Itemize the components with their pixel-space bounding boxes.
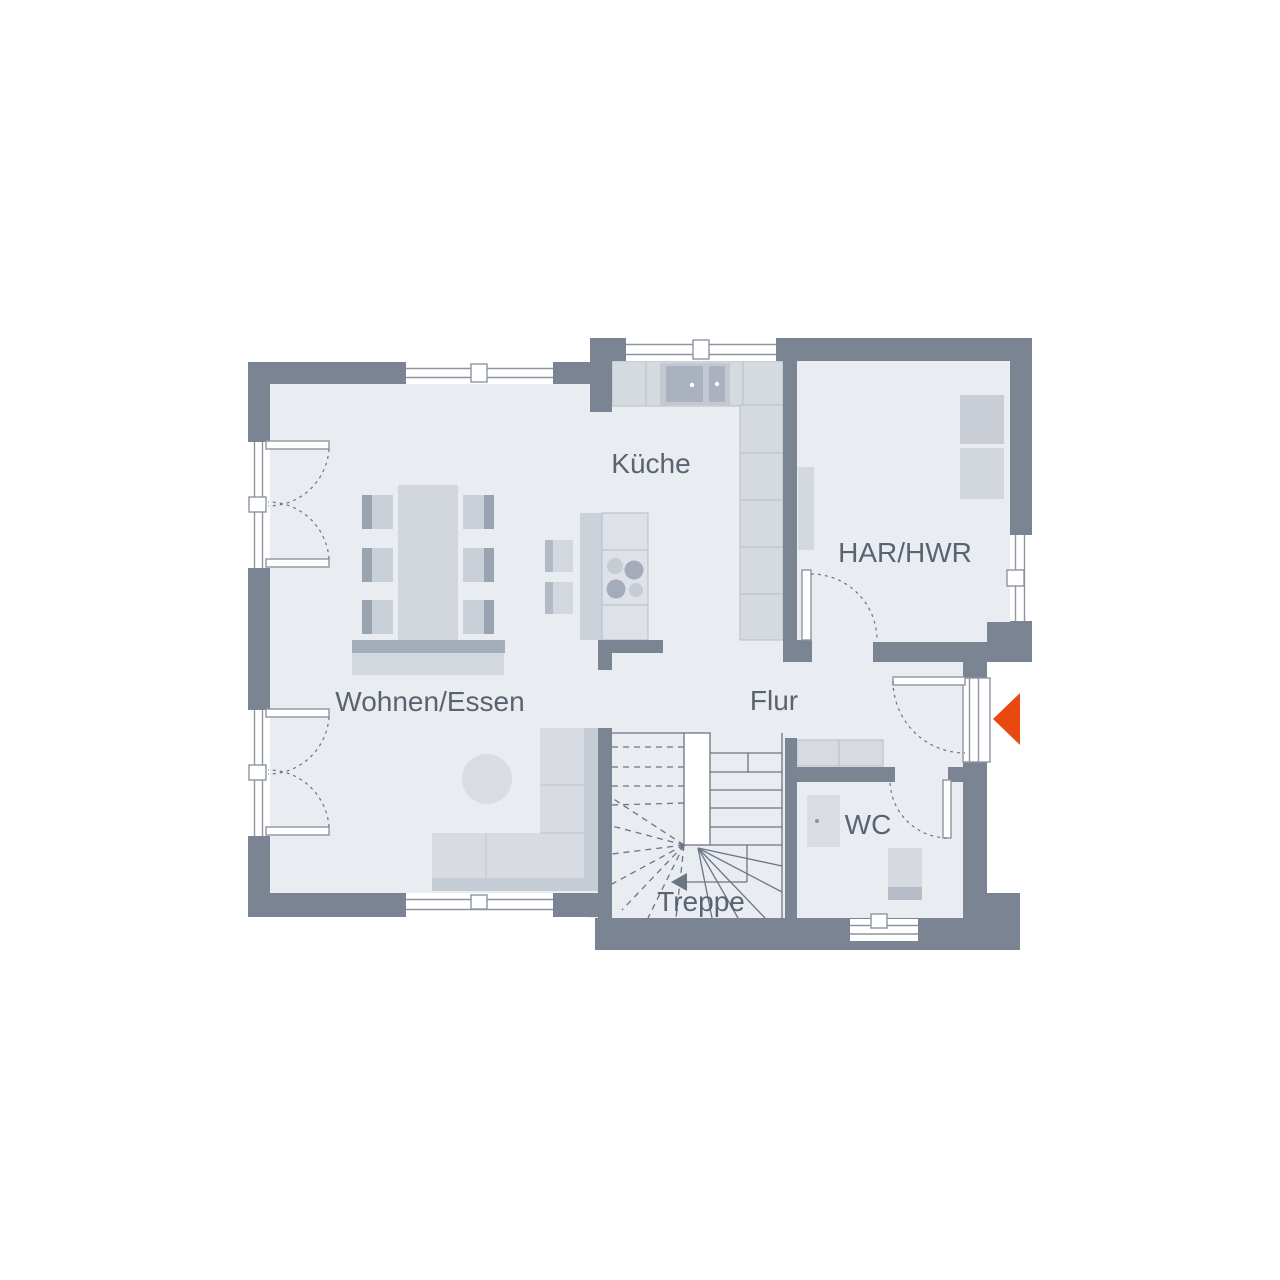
wc-toilet bbox=[888, 848, 922, 900]
window-har-right bbox=[1007, 535, 1032, 621]
dining-set bbox=[352, 485, 505, 675]
room-label-wohnen-essen: Wohnen/Essen bbox=[335, 686, 524, 717]
wc-sink bbox=[807, 795, 840, 847]
round-rug bbox=[462, 754, 512, 804]
room-label-har-hwr: HAR/HWR bbox=[838, 537, 972, 568]
floor-plan-canvas: Küche HAR/HWR Wohnen/Essen Flur WC Trepp… bbox=[0, 0, 1280, 1280]
flur-cabinets bbox=[797, 740, 883, 766]
room-label-wc: WC bbox=[845, 809, 892, 840]
kitchen-sink bbox=[660, 363, 730, 405]
dining-table bbox=[398, 485, 458, 640]
window-living-top bbox=[406, 362, 553, 384]
window-living-bottom bbox=[406, 893, 553, 917]
window-kitchen-top bbox=[626, 338, 776, 361]
stair-void bbox=[684, 733, 710, 845]
room-label-kueche: Küche bbox=[611, 448, 690, 479]
sideboard bbox=[352, 640, 505, 675]
room-label-flur: Flur bbox=[750, 685, 798, 716]
room-label-treppe: Treppe bbox=[657, 886, 745, 917]
floor-plan: Küche HAR/HWR Wohnen/Essen Flur WC Trepp… bbox=[0, 0, 1280, 1280]
